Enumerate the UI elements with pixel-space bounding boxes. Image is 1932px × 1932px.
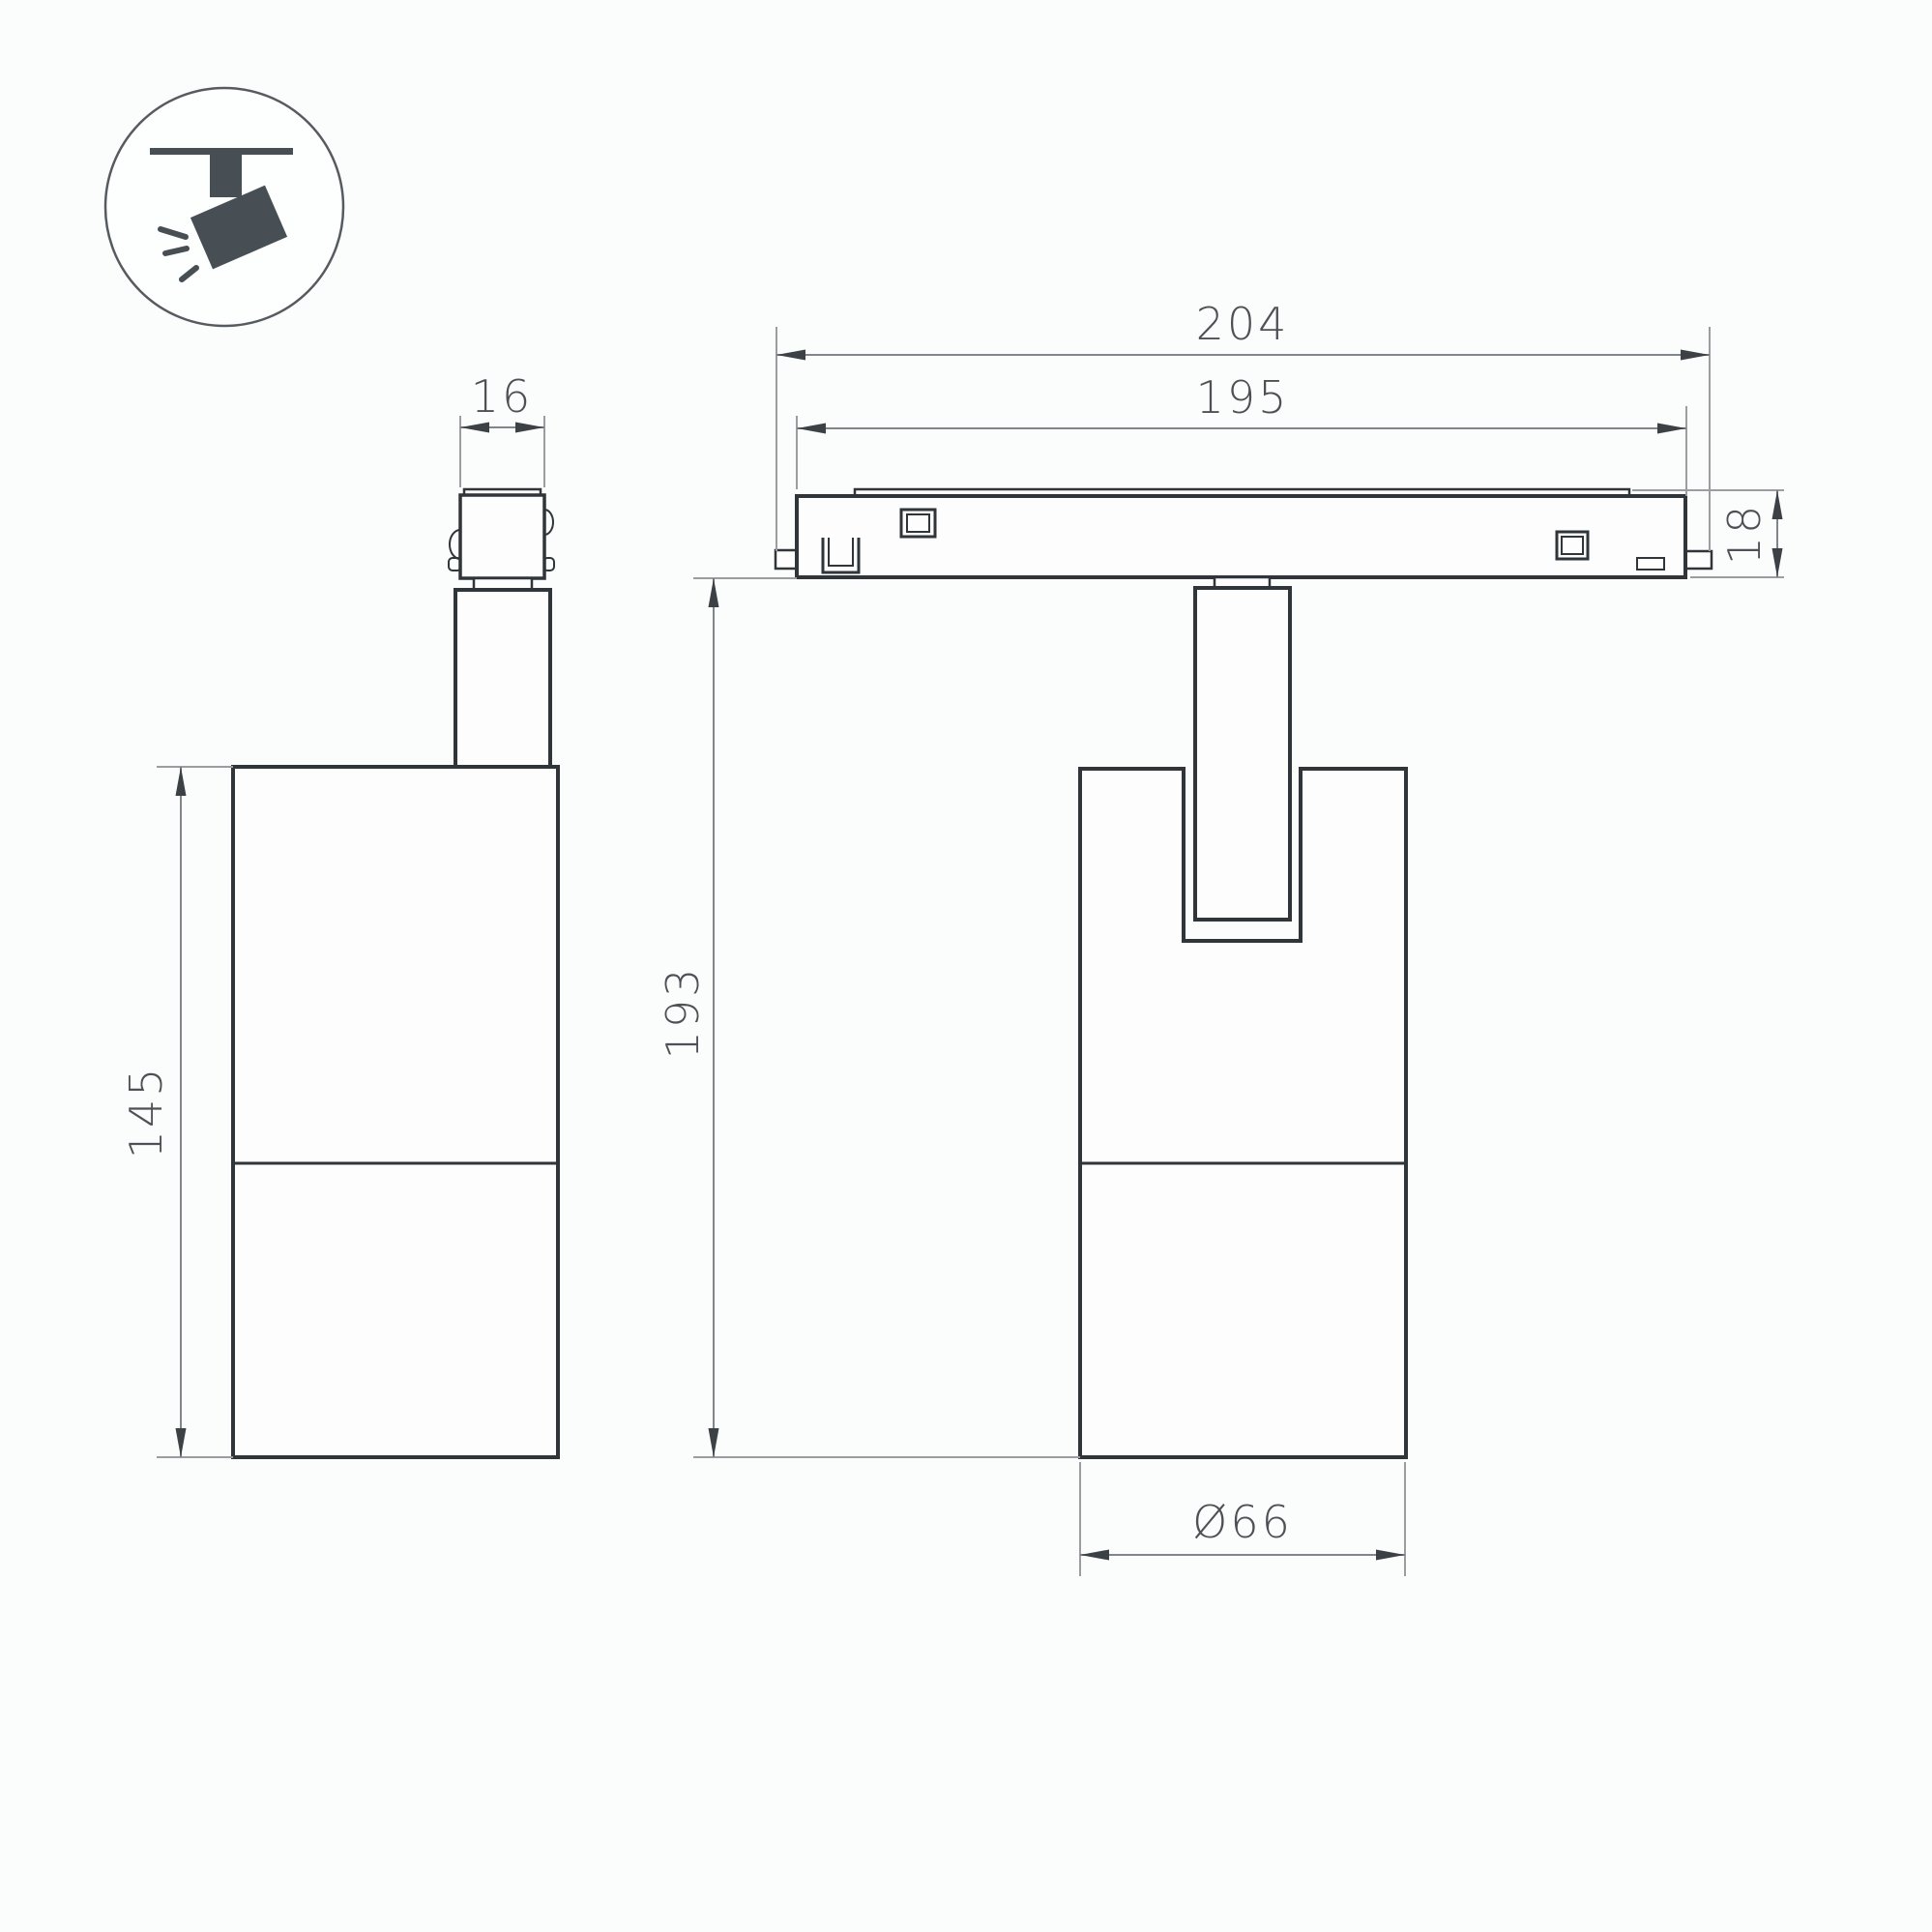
track-right-tab bbox=[1685, 551, 1712, 569]
dimension-total-height: 193 bbox=[657, 578, 1080, 1457]
side-stem bbox=[455, 590, 550, 767]
front-stem bbox=[1195, 588, 1290, 920]
technical-drawing: 204 195 18 16 145 bbox=[0, 0, 1932, 1932]
dimension-body-diameter: Ø66 bbox=[1080, 1462, 1405, 1576]
front-view bbox=[776, 489, 1712, 1457]
side-lamp-body bbox=[233, 767, 558, 1457]
side-view bbox=[233, 489, 558, 1457]
dim-label-195: 195 bbox=[1196, 371, 1290, 424]
track-spotlight-icon bbox=[105, 88, 343, 326]
dim-label-204: 204 bbox=[1196, 298, 1290, 350]
dimension-track-body-width: 195 bbox=[797, 371, 1686, 496]
track-adapter-block bbox=[460, 495, 544, 578]
dim-label-145: 145 bbox=[120, 1066, 172, 1159]
icon-mount-stem bbox=[210, 153, 242, 197]
dim-label-d66: Ø66 bbox=[1192, 1496, 1293, 1548]
track-left-tab bbox=[776, 550, 797, 569]
dim-label-193: 193 bbox=[657, 966, 709, 1060]
dimension-adapter-width: 16 bbox=[460, 370, 544, 487]
dim-label-16: 16 bbox=[471, 370, 534, 423]
dim-label-18: 18 bbox=[1718, 503, 1771, 566]
dimension-body-height: 145 bbox=[120, 767, 233, 1457]
